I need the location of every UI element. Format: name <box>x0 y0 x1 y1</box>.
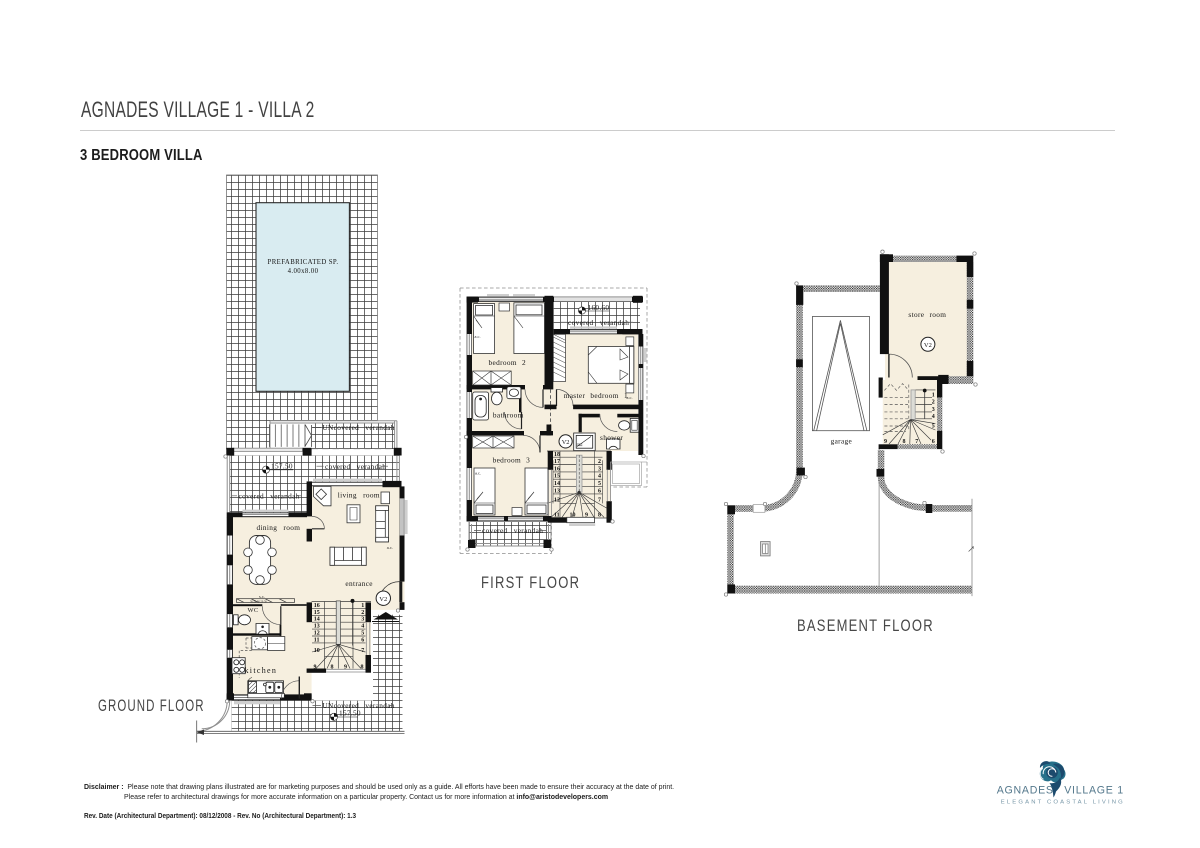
svg-text:6: 6 <box>598 488 601 494</box>
svg-text:4: 4 <box>932 414 935 420</box>
svg-text:covered verandah: covered verandah <box>568 318 629 327</box>
svg-text:2: 2 <box>361 610 364 616</box>
svg-text:5: 5 <box>598 481 601 487</box>
svg-text:covered verandah: covered verandah <box>482 526 543 535</box>
svg-text:9: 9 <box>884 439 887 445</box>
svg-text:8: 8 <box>598 512 601 518</box>
svg-text:6: 6 <box>932 439 935 445</box>
svg-text:3: 3 <box>361 617 364 623</box>
svg-text:8: 8 <box>361 664 364 670</box>
svg-text:8: 8 <box>331 664 334 670</box>
svg-text:10: 10 <box>314 648 320 654</box>
svg-text:store room: store room <box>908 310 946 319</box>
svg-text:9: 9 <box>585 512 588 518</box>
svg-text:11: 11 <box>314 637 320 643</box>
svg-text:10: 10 <box>570 512 576 518</box>
svg-text:4: 4 <box>361 624 364 630</box>
svg-text:7: 7 <box>598 497 601 503</box>
svg-text:9: 9 <box>344 664 347 670</box>
svg-text:13: 13 <box>554 488 560 494</box>
svg-text:16: 16 <box>314 603 320 609</box>
svg-text:bathroom: bathroom <box>493 410 524 419</box>
svg-text:7: 7 <box>361 648 364 654</box>
svg-text:9: 9 <box>314 664 317 670</box>
svg-text:dining room: dining room <box>257 523 301 532</box>
svg-text:4.00x8.00: 4.00x8.00 <box>288 268 319 275</box>
svg-text:160.60: 160.60 <box>588 303 610 312</box>
svg-text:bedroom 3: bedroom 3 <box>493 455 531 464</box>
svg-text:15: 15 <box>314 610 320 616</box>
svg-text:UNcovered verandah: UNcovered verandah <box>322 423 395 432</box>
svg-text:11: 11 <box>554 512 560 518</box>
svg-text:2: 2 <box>932 400 935 406</box>
svg-text:a.c.: a.c. <box>387 545 393 550</box>
svg-text:3: 3 <box>598 466 601 472</box>
svg-text:ELEGANT COASTAL LIVING: ELEGANT COASTAL LIVING <box>1001 800 1125 806</box>
svg-text:6: 6 <box>361 637 364 643</box>
svg-text:18: 18 <box>554 452 560 458</box>
svg-text:living room: living room <box>338 491 380 500</box>
svg-text:a.c.: a.c. <box>475 334 481 339</box>
svg-text:2: 2 <box>598 459 601 465</box>
svg-text:garage: garage <box>831 437 853 446</box>
svg-text:kitchen: kitchen <box>245 666 278 675</box>
svg-text:50.50 50.50 50: 50.50 50.50 50 <box>250 601 267 604</box>
svg-text:12: 12 <box>314 631 320 637</box>
svg-text:V2: V2 <box>379 596 387 603</box>
svg-text:13: 13 <box>314 624 320 630</box>
svg-text:AGNADES: AGNADES <box>997 784 1054 796</box>
svg-text:16: 16 <box>554 466 560 472</box>
svg-text:a.c.: a.c. <box>627 395 633 400</box>
svg-text:5: 5 <box>361 631 364 637</box>
svg-text:1: 1 <box>361 603 364 609</box>
svg-text:PREFABRICATED SP.: PREFABRICATED SP. <box>268 259 339 266</box>
svg-text:V2: V2 <box>924 342 932 349</box>
svg-text:14: 14 <box>314 617 320 623</box>
svg-text:1: 1 <box>932 392 935 398</box>
svg-text:master bedroom 1: master bedroom 1 <box>564 391 628 400</box>
svg-text:7: 7 <box>915 439 918 445</box>
svg-text:4: 4 <box>598 474 601 480</box>
svg-text:entrance: entrance <box>345 579 373 588</box>
svg-text:157.50: 157.50 <box>271 462 293 471</box>
svg-text:14: 14 <box>554 481 560 487</box>
svg-text:covered verandah: covered verandah <box>325 462 386 471</box>
svg-text:covered verandah: covered verandah <box>239 491 300 500</box>
svg-text:15: 15 <box>554 474 560 480</box>
svg-text:a.c.: a.c. <box>475 471 481 476</box>
svg-text:12: 12 <box>554 497 560 503</box>
svg-text:5: 5 <box>932 424 935 430</box>
svg-text:V2: V2 <box>562 439 570 446</box>
svg-text:WC: WC <box>248 607 259 614</box>
svg-text:VILLAGE 1: VILLAGE 1 <box>1064 784 1124 796</box>
svg-text:s.c.: s.c. <box>259 594 265 599</box>
svg-text:17: 17 <box>554 459 560 465</box>
svg-text:157.50: 157.50 <box>339 709 361 718</box>
svg-text:bedroom 2: bedroom 2 <box>489 358 527 367</box>
svg-text:8: 8 <box>903 439 906 445</box>
svg-text:3: 3 <box>932 407 935 413</box>
svg-text:shower: shower <box>600 433 623 442</box>
